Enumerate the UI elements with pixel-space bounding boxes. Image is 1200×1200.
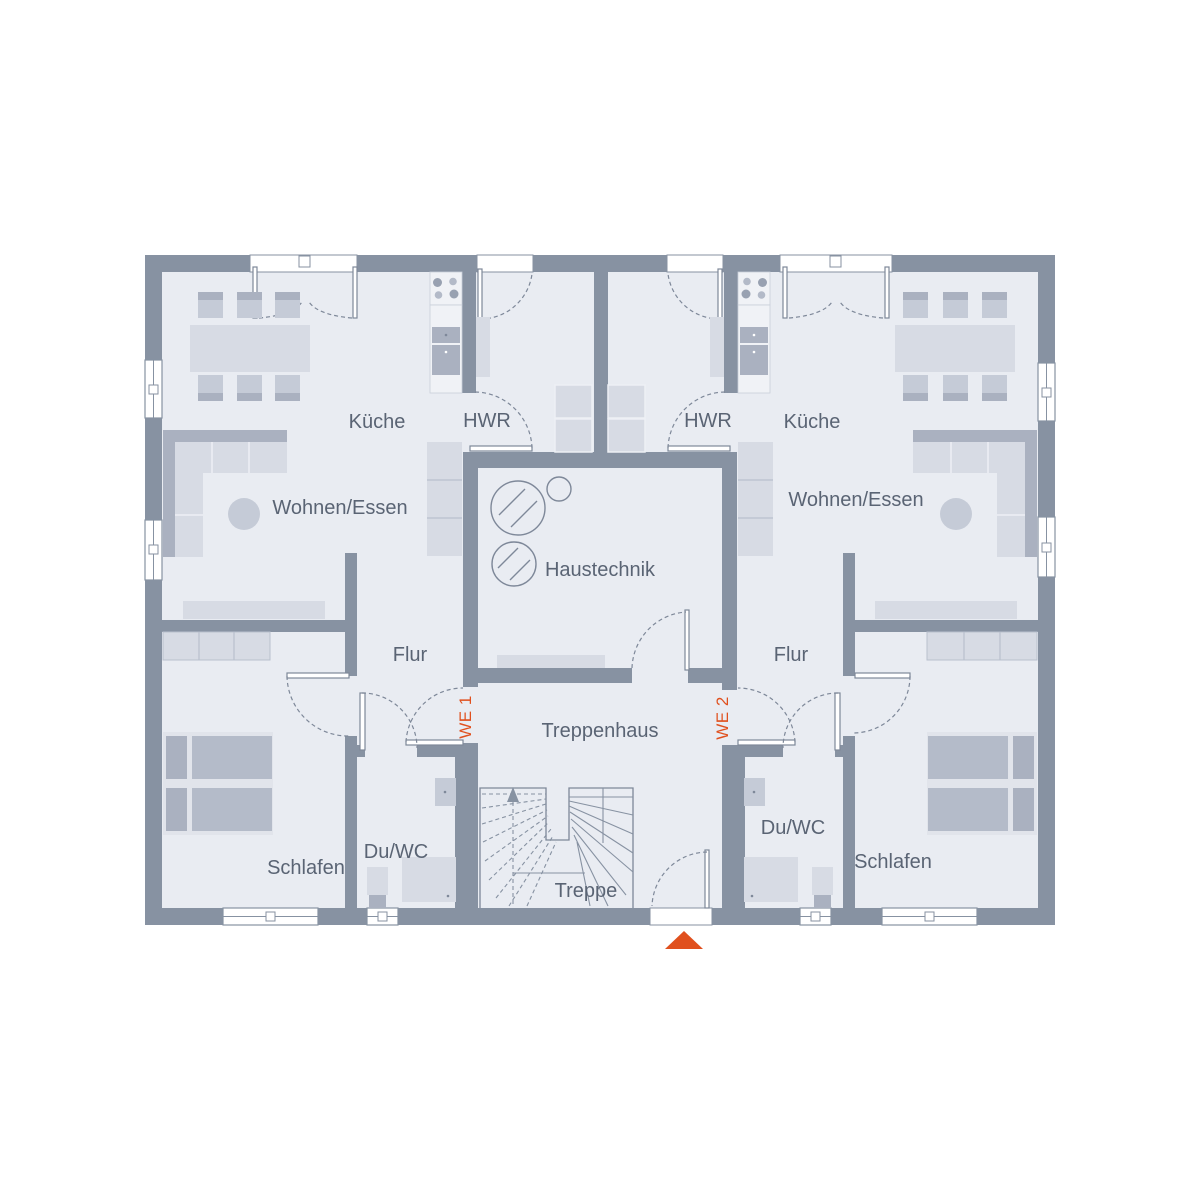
window xyxy=(1038,363,1055,421)
unit-label-we1: WE 1 xyxy=(456,695,475,739)
wall-segment xyxy=(843,736,855,908)
room-label-bedroom-right: Schlafen xyxy=(854,851,932,873)
toilet xyxy=(812,867,833,895)
wall-segment xyxy=(345,553,357,676)
floor-plan: Küche HWR Wohnen/Essen Flur Schlafen Du/… xyxy=(0,0,1200,1200)
wall-segment xyxy=(688,668,722,683)
sideboard-left xyxy=(183,601,325,619)
room-label-living-right: Wohnen/Essen xyxy=(788,489,923,511)
kitchen-counter xyxy=(738,442,773,556)
window xyxy=(1038,517,1055,577)
room-label-stair-hall: Treppenhaus xyxy=(541,720,658,742)
shelf xyxy=(497,655,605,668)
wall-segment xyxy=(594,272,608,452)
window xyxy=(223,908,318,925)
wall-segment xyxy=(162,620,355,632)
room-label-bedroom-left: Schlafen xyxy=(267,857,345,879)
toilet xyxy=(367,867,388,895)
wall-segment xyxy=(724,272,738,393)
pillow xyxy=(1013,788,1034,831)
pillow xyxy=(166,736,187,779)
dining-set-left xyxy=(190,292,310,401)
mattress xyxy=(928,736,1008,779)
room-label-stair: Treppe xyxy=(555,880,618,902)
room-label-utility-left: HWR xyxy=(463,410,511,432)
utility-cabinet xyxy=(710,317,724,377)
wall-segment xyxy=(478,668,632,683)
wall-segment xyxy=(735,753,745,908)
wardrobe-right xyxy=(927,632,1037,660)
wall-segment xyxy=(843,553,855,676)
pillow xyxy=(166,788,187,831)
wall-segment xyxy=(357,255,477,272)
room-label-bath-right: Du/WC xyxy=(761,817,825,839)
coffee-table-right xyxy=(940,498,972,530)
pillow xyxy=(1013,736,1034,779)
coffee-table-left xyxy=(228,498,260,530)
room-label-bath-left: Du/WC xyxy=(364,841,428,863)
wall-segment xyxy=(345,736,357,908)
room-label-living-left: Wohnen/Essen xyxy=(272,497,407,519)
room-label-hallway-right: Flur xyxy=(774,644,809,666)
bed-left xyxy=(163,732,273,835)
mattress xyxy=(928,788,1008,831)
dining-table xyxy=(190,325,310,372)
wall-segment xyxy=(463,468,478,687)
window xyxy=(145,360,162,418)
bed-right xyxy=(927,732,1037,835)
dining-table xyxy=(895,325,1015,372)
washer xyxy=(608,385,645,418)
wall-segment xyxy=(892,255,1055,272)
wall-segment xyxy=(723,255,780,272)
mattress xyxy=(192,788,272,831)
stove xyxy=(430,272,462,305)
wall-segment xyxy=(463,452,737,468)
unit-label-we2: WE 2 xyxy=(713,696,732,740)
room-label-utility-right: HWR xyxy=(684,410,732,432)
sideboard-right xyxy=(875,601,1017,619)
room-label-hallway-left: Flur xyxy=(393,644,428,666)
wall-segment xyxy=(455,753,465,908)
wall-segment xyxy=(145,255,162,925)
wall-segment xyxy=(462,272,476,393)
wall-segment xyxy=(463,743,478,908)
wardrobe-left xyxy=(163,632,270,660)
floor-plan-page: Küche HWR Wohnen/Essen Flur Schlafen Du/… xyxy=(0,0,1200,1200)
room-label-kitchen-right: Küche xyxy=(784,411,841,433)
dining-set-right xyxy=(895,292,1015,401)
wall-segment xyxy=(855,620,1038,632)
washer xyxy=(555,385,592,418)
utility-cabinet xyxy=(476,317,490,377)
window xyxy=(882,908,977,925)
window xyxy=(145,520,162,580)
window xyxy=(800,908,831,925)
dryer xyxy=(608,419,645,452)
wall-segment xyxy=(722,745,737,908)
wall-segment xyxy=(533,255,667,272)
kitchen-counter xyxy=(427,442,462,556)
room-label-kitchen-left: Küche xyxy=(349,411,406,433)
entrance-marker-icon xyxy=(665,931,703,949)
mattress xyxy=(192,736,272,779)
room-label-mechanical: Haustechnik xyxy=(545,559,656,581)
window xyxy=(367,908,398,925)
stove xyxy=(738,272,770,305)
wall-segment xyxy=(1038,255,1055,925)
wall-segment xyxy=(722,468,737,690)
dryer xyxy=(555,419,592,452)
